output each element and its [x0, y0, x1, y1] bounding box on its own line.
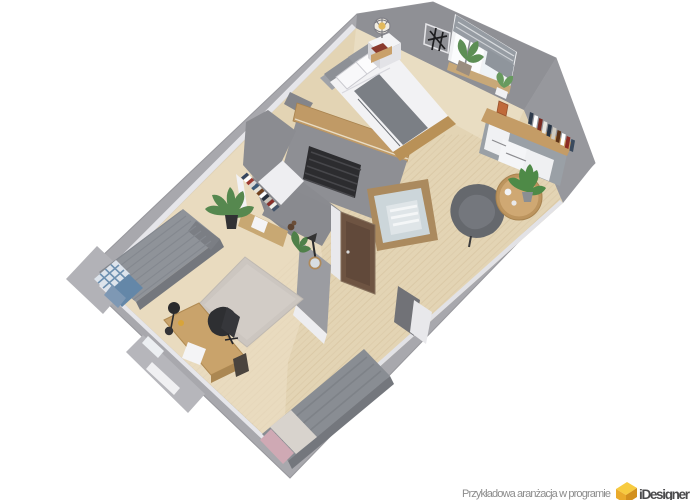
svg-text:Przykładowa aranżacja w progra: Przykładowa aranżacja w programie [462, 488, 611, 500]
svg-text:iDesigner: iDesigner [639, 487, 691, 500]
